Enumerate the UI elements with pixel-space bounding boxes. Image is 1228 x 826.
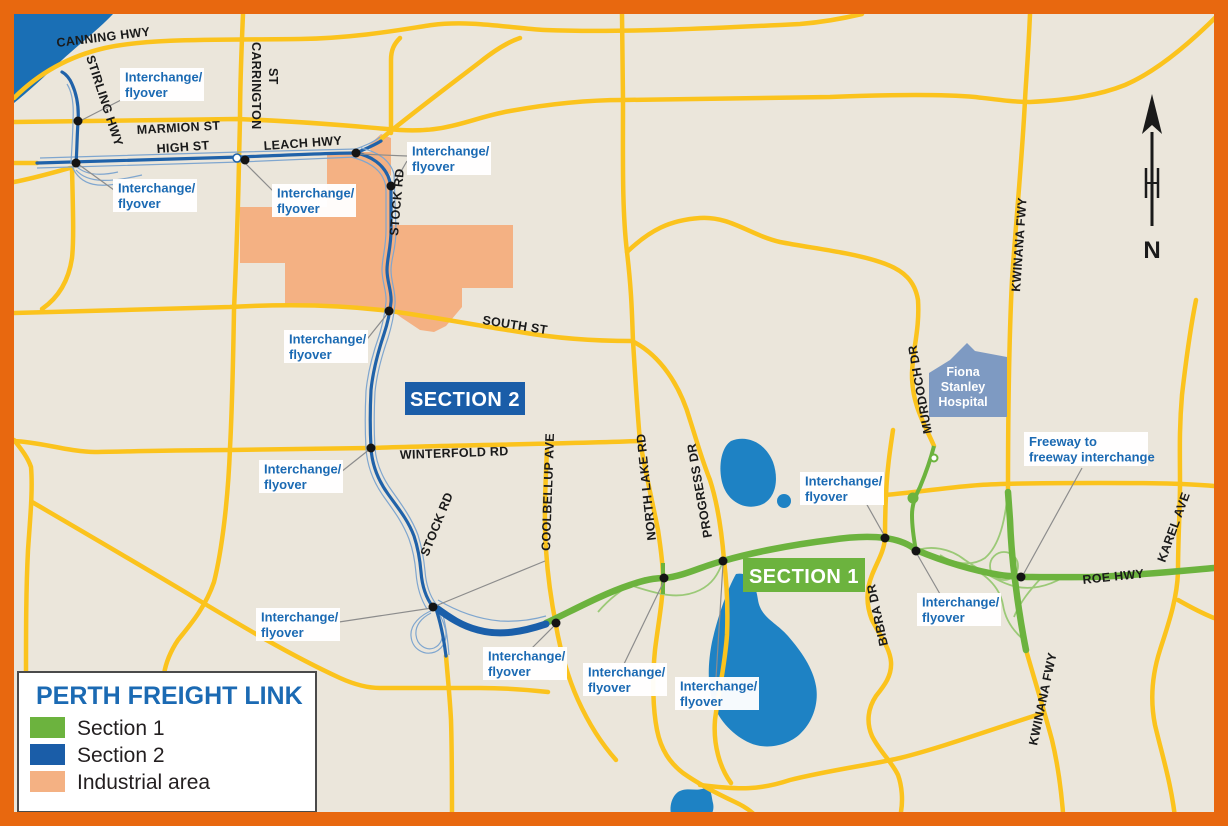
interchange-dot — [912, 547, 921, 556]
interchange-line2: flyover — [264, 477, 307, 492]
interchange-line2: flyover — [412, 159, 455, 174]
label-carrington: CARRINGTON — [249, 42, 263, 130]
interchange-line1: Interchange/ — [261, 610, 339, 625]
border-right — [1214, 0, 1228, 826]
interchange-dot — [552, 619, 561, 628]
interchange-dot — [241, 156, 250, 165]
legend: PERTH FREIGHT LINK Section 1 Section 2 I… — [18, 672, 316, 812]
interchange-label: Interchange/flyover — [120, 68, 204, 101]
interchange-label: Interchange/flyover — [256, 608, 340, 641]
perth-freight-link-map-page: Fiona Stanley Hospital CANNING HWY STIRL… — [0, 0, 1228, 826]
interchange-dot — [367, 444, 376, 453]
interchange-line1: Interchange/ — [277, 186, 355, 201]
murdoch-junction — [908, 493, 919, 504]
section1-badge: SECTION 1 — [743, 558, 865, 592]
interchange-label: Interchange/flyover — [407, 142, 491, 175]
interchange-line2: flyover — [680, 694, 723, 709]
interchange-label: Interchange/flyover — [113, 179, 197, 212]
section2-badge: SECTION 2 — [405, 382, 525, 415]
interchange-dot — [429, 603, 438, 612]
interchange-line1: Interchange/ — [118, 181, 196, 196]
interchange-line1: Interchange/ — [680, 679, 758, 694]
border-left — [0, 0, 14, 826]
interchange-dot — [660, 574, 669, 583]
interchange-dot — [72, 159, 81, 168]
interchange-line2: flyover — [922, 610, 965, 625]
legend-swatch-section1 — [30, 717, 65, 738]
north-label: N — [1143, 237, 1160, 264]
freeway-line1: Freeway to — [1029, 434, 1097, 449]
label-carrington-st: ST — [266, 68, 280, 85]
interchange-line2: flyover — [277, 201, 320, 216]
interchange-label: Interchange/flyover — [800, 472, 884, 505]
border-top — [0, 0, 1228, 14]
interchange-line1: Interchange/ — [412, 144, 490, 159]
interchange-label: Interchange/flyover — [284, 330, 368, 363]
interchange-label: Interchange/flyover — [272, 184, 356, 217]
open-circle-carrington — [233, 154, 241, 162]
interchange-dot — [352, 149, 361, 158]
interchange-line2: flyover — [289, 347, 332, 362]
interchange-line1: Interchange/ — [264, 462, 342, 477]
legend-label-section2: Section 2 — [77, 744, 165, 767]
freeway-line2: freeway interchange — [1029, 450, 1155, 465]
map-canvas: Fiona Stanley Hospital CANNING HWY STIRL… — [0, 0, 1228, 826]
legend-label-section1: Section 1 — [77, 717, 165, 740]
section2-badge-label: SECTION 2 — [410, 389, 520, 411]
interchange-line1: Interchange/ — [805, 474, 883, 489]
freeway-interchange-label: Freeway tofreeway interchange — [1024, 432, 1155, 466]
interchange-dot — [719, 557, 728, 566]
interchange-label: Interchange/flyover — [583, 663, 667, 696]
section1-badge-label: SECTION 1 — [749, 566, 859, 588]
interchange-line2: flyover — [488, 664, 531, 679]
hospital-label-line3: Hospital — [938, 395, 987, 409]
interchange-dot — [1017, 573, 1026, 582]
interchange-line1: Interchange/ — [588, 665, 666, 680]
interchange-label: Interchange/flyover — [917, 593, 1001, 626]
small-lake — [777, 494, 791, 508]
murdoch-open-circle — [931, 455, 938, 462]
legend-title: PERTH FREIGHT LINK — [36, 682, 303, 710]
interchange-label: Interchange/flyover — [675, 677, 759, 710]
border-bottom — [0, 812, 1228, 826]
interchange-line2: flyover — [125, 85, 168, 100]
interchange-line2: flyover — [261, 625, 304, 640]
interchange-line1: Interchange/ — [922, 595, 1000, 610]
interchange-line1: Interchange/ — [488, 649, 566, 664]
interchange-label: Interchange/flyover — [483, 647, 567, 680]
interchange-dot — [881, 534, 890, 543]
interchange-line2: flyover — [118, 196, 161, 211]
interchange-dot — [74, 117, 83, 126]
interchange-line1: Interchange/ — [125, 70, 203, 85]
interchange-line2: flyover — [805, 489, 848, 504]
legend-label-industrial: Industrial area — [77, 771, 210, 794]
hospital-label-line2: Stanley — [941, 380, 986, 394]
interchange-line2: flyover — [588, 680, 631, 695]
interchange-label: Interchange/flyover — [259, 460, 343, 493]
interchange-line1: Interchange/ — [289, 332, 367, 347]
legend-swatch-industrial — [30, 771, 65, 792]
hospital-label-line1: Fiona — [946, 365, 980, 379]
legend-swatch-section2 — [30, 744, 65, 765]
interchange-dot — [385, 307, 394, 316]
